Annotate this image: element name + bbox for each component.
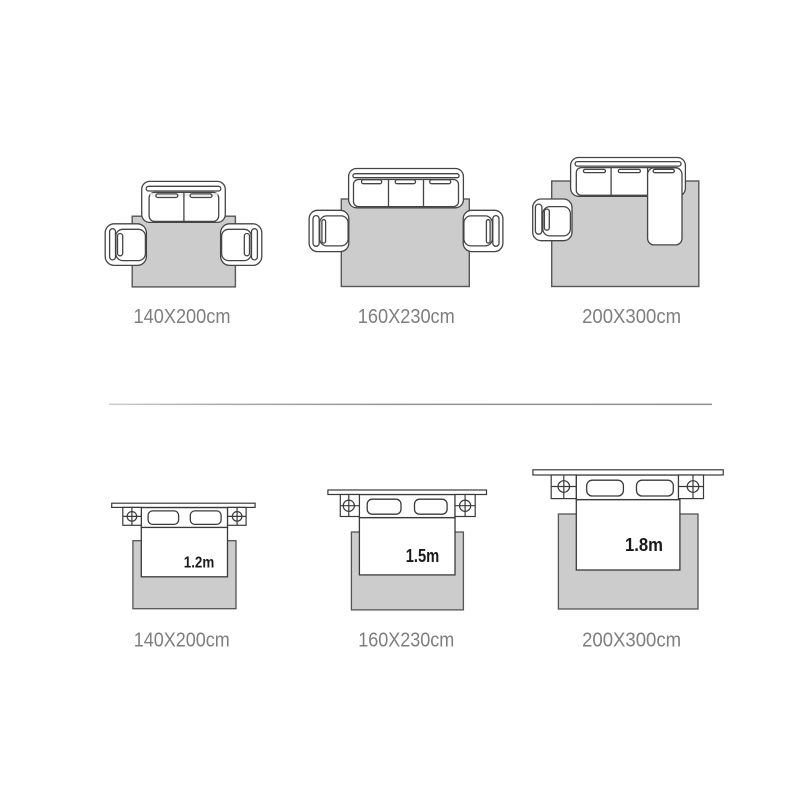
svg-text:140X200cm: 140X200cm: [134, 306, 231, 328]
svg-text:1.2m: 1.2m: [184, 555, 215, 572]
svg-text:200X300cm: 200X300cm: [582, 629, 681, 651]
svg-text:140X200cm: 140X200cm: [134, 629, 230, 651]
svg-text:160X230cm: 160X230cm: [358, 306, 455, 328]
svg-text:1.5m: 1.5m: [406, 545, 440, 566]
svg-text:200X300cm: 200X300cm: [582, 306, 681, 328]
svg-text:1.8m: 1.8m: [625, 534, 663, 555]
svg-text:160X230cm: 160X230cm: [358, 629, 454, 651]
